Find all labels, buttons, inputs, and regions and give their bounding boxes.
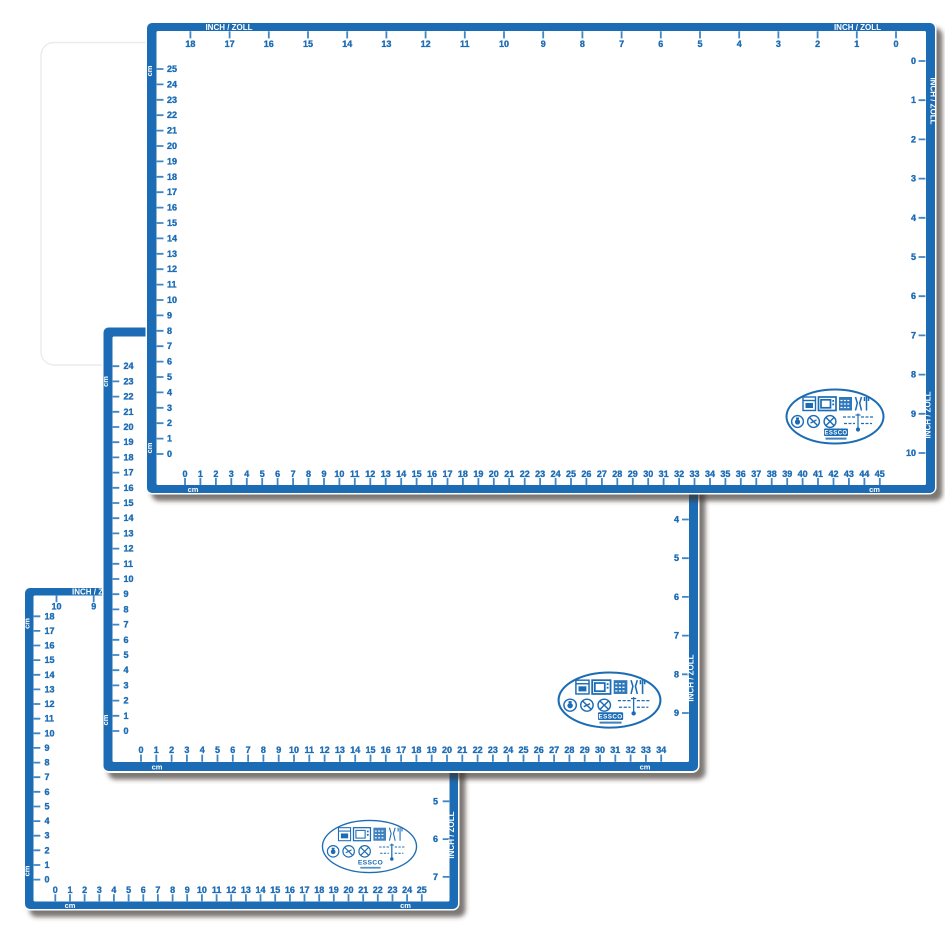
svg-text:8: 8 [306, 469, 311, 479]
svg-text:11: 11 [305, 745, 315, 755]
svg-text:16: 16 [124, 483, 134, 493]
svg-text:17: 17 [299, 885, 309, 895]
svg-text:15: 15 [45, 655, 55, 665]
svg-text:9: 9 [911, 409, 916, 419]
svg-text:25: 25 [518, 745, 528, 755]
svg-text:22: 22 [520, 469, 530, 479]
svg-text:7: 7 [167, 341, 172, 351]
svg-text:13: 13 [381, 469, 391, 479]
svg-text:21: 21 [124, 407, 134, 417]
svg-text:cm: cm [65, 901, 76, 910]
svg-text:6: 6 [433, 834, 438, 844]
svg-text:8: 8 [170, 885, 175, 895]
svg-text:17: 17 [442, 469, 452, 479]
svg-text:16: 16 [167, 203, 177, 213]
svg-text:3: 3 [124, 680, 129, 690]
svg-text:8: 8 [124, 604, 129, 614]
svg-text:8: 8 [261, 745, 266, 755]
svg-text:32: 32 [674, 469, 684, 479]
svg-text:0: 0 [167, 449, 172, 459]
svg-text:13: 13 [167, 249, 177, 259]
svg-text:INCH / ZOLL: INCH / ZOLL [205, 23, 252, 32]
svg-text:17: 17 [167, 187, 177, 197]
svg-text:22: 22 [167, 110, 177, 120]
svg-text:25: 25 [566, 469, 576, 479]
svg-text:9: 9 [321, 469, 326, 479]
svg-text:cm: cm [145, 442, 154, 453]
svg-text:2: 2 [45, 845, 50, 855]
svg-text:34: 34 [705, 469, 715, 479]
svg-text:14: 14 [342, 39, 352, 49]
svg-text:cm: cm [22, 618, 31, 629]
svg-text:2: 2 [169, 745, 174, 755]
svg-text:4: 4 [111, 885, 116, 895]
svg-text:6: 6 [275, 469, 280, 479]
svg-text:5: 5 [45, 802, 50, 812]
svg-text:5: 5 [260, 469, 265, 479]
svg-text:3: 3 [229, 469, 234, 479]
svg-text:32: 32 [626, 745, 636, 755]
svg-text:13: 13 [45, 684, 55, 694]
svg-text:2: 2 [82, 885, 87, 895]
svg-text:cm: cm [145, 65, 154, 76]
svg-text:12: 12 [167, 264, 177, 274]
svg-text:0: 0 [45, 875, 50, 885]
svg-text:13: 13 [241, 885, 251, 895]
svg-text:14: 14 [255, 885, 265, 895]
svg-text:0: 0 [124, 726, 129, 736]
svg-text:9: 9 [541, 39, 546, 49]
svg-text:11: 11 [124, 559, 134, 569]
svg-text:3: 3 [167, 403, 172, 413]
svg-text:25: 25 [417, 885, 427, 895]
svg-text:10: 10 [499, 39, 509, 49]
svg-text:15: 15 [303, 39, 313, 49]
svg-text:7: 7 [124, 620, 129, 630]
svg-text:33: 33 [641, 745, 651, 755]
svg-text:24: 24 [402, 885, 412, 895]
svg-text:24: 24 [551, 469, 561, 479]
svg-text:1: 1 [124, 711, 129, 721]
svg-text:14: 14 [124, 513, 134, 523]
svg-text:6: 6 [658, 39, 663, 49]
svg-text:20: 20 [442, 745, 452, 755]
svg-text:16: 16 [427, 469, 437, 479]
svg-text:5: 5 [167, 372, 172, 382]
svg-text:17: 17 [225, 39, 235, 49]
svg-text:39: 39 [782, 469, 792, 479]
svg-text:1: 1 [167, 434, 172, 444]
svg-text:44: 44 [859, 469, 869, 479]
svg-text:28: 28 [612, 469, 622, 479]
svg-text:0: 0 [138, 745, 143, 755]
svg-text:23: 23 [124, 376, 134, 386]
svg-text:15: 15 [412, 469, 422, 479]
svg-text:cm: cm [640, 763, 651, 772]
svg-text:15: 15 [124, 498, 134, 508]
svg-text:23: 23 [488, 745, 498, 755]
svg-text:cm: cm [400, 901, 411, 910]
svg-text:18: 18 [167, 172, 177, 182]
svg-text:12: 12 [124, 544, 134, 554]
svg-text:12: 12 [365, 469, 375, 479]
svg-text:29: 29 [628, 469, 638, 479]
svg-text:6: 6 [911, 291, 916, 301]
svg-text:8: 8 [580, 39, 585, 49]
svg-text:12: 12 [421, 39, 431, 49]
svg-text:13: 13 [381, 39, 391, 49]
svg-text:37: 37 [751, 469, 761, 479]
svg-text:6: 6 [141, 885, 146, 895]
svg-text:13: 13 [124, 528, 134, 538]
svg-text:5: 5 [124, 650, 129, 660]
svg-text:6: 6 [167, 357, 172, 367]
svg-text:19: 19 [167, 156, 177, 166]
svg-text:27: 27 [597, 469, 607, 479]
svg-text:23: 23 [535, 469, 545, 479]
svg-text:35: 35 [720, 469, 730, 479]
svg-text:18: 18 [185, 39, 195, 49]
svg-text:34: 34 [656, 745, 666, 755]
svg-text:4: 4 [200, 745, 205, 755]
svg-text:17: 17 [45, 626, 55, 636]
svg-text:INCH / ZOLL: INCH / ZOLL [447, 811, 456, 858]
svg-text:1: 1 [154, 745, 159, 755]
svg-text:9: 9 [674, 708, 679, 718]
svg-text:17: 17 [124, 468, 134, 478]
svg-text:24: 24 [503, 745, 513, 755]
svg-text:30: 30 [595, 745, 605, 755]
svg-text:16: 16 [285, 885, 295, 895]
svg-text:INCH / ZOLL: INCH / ZOLL [834, 23, 881, 32]
svg-text:10: 10 [289, 745, 299, 755]
svg-text:7: 7 [246, 745, 251, 755]
svg-text:41: 41 [813, 469, 823, 479]
svg-text:cm: cm [22, 865, 31, 876]
svg-text:11: 11 [212, 885, 222, 895]
svg-text:36: 36 [736, 469, 746, 479]
svg-text:12: 12 [320, 745, 330, 755]
svg-text:0: 0 [53, 885, 58, 895]
svg-text:18: 18 [314, 885, 324, 895]
svg-text:16: 16 [264, 39, 274, 49]
svg-text:14: 14 [167, 233, 177, 243]
svg-text:20: 20 [489, 469, 499, 479]
svg-text:15: 15 [167, 218, 177, 228]
svg-text:21: 21 [358, 885, 368, 895]
svg-text:14: 14 [396, 469, 406, 479]
svg-text:18: 18 [458, 469, 468, 479]
svg-text:7: 7 [911, 330, 916, 340]
svg-text:5: 5 [433, 796, 438, 806]
svg-text:45: 45 [875, 469, 885, 479]
svg-text:3: 3 [97, 885, 102, 895]
svg-text:cm: cm [152, 763, 163, 772]
svg-text:4: 4 [167, 387, 172, 397]
svg-text:2: 2 [815, 39, 820, 49]
svg-text:8: 8 [674, 669, 679, 679]
svg-text:4: 4 [911, 213, 916, 223]
svg-text:23: 23 [167, 95, 177, 105]
svg-text:10: 10 [167, 295, 177, 305]
svg-text:26: 26 [534, 745, 544, 755]
svg-text:INCH / ZOLL: INCH / ZOLL [924, 391, 933, 438]
svg-text:1: 1 [854, 39, 859, 49]
svg-text:40: 40 [798, 469, 808, 479]
svg-text:6: 6 [674, 592, 679, 602]
svg-text:4: 4 [674, 515, 679, 525]
svg-text:22: 22 [124, 392, 134, 402]
svg-text:38: 38 [767, 469, 777, 479]
svg-text:0: 0 [893, 39, 898, 49]
svg-text:23: 23 [387, 885, 397, 895]
svg-text:21: 21 [504, 469, 514, 479]
svg-text:18: 18 [124, 452, 134, 462]
svg-text:6: 6 [45, 787, 50, 797]
svg-text:7: 7 [291, 469, 296, 479]
svg-text:6: 6 [230, 745, 235, 755]
svg-text:25: 25 [167, 64, 177, 74]
svg-text:26: 26 [581, 469, 591, 479]
svg-text:20: 20 [124, 422, 134, 432]
svg-text:19: 19 [329, 885, 339, 895]
svg-text:18: 18 [45, 611, 55, 621]
svg-text:11: 11 [350, 469, 360, 479]
svg-text:1: 1 [911, 95, 916, 105]
svg-text:8: 8 [45, 758, 50, 768]
svg-text:28: 28 [564, 745, 574, 755]
svg-text:24: 24 [167, 79, 177, 89]
svg-text:10: 10 [51, 602, 61, 612]
svg-text:8: 8 [911, 370, 916, 380]
svg-text:2: 2 [911, 134, 916, 144]
svg-text:16: 16 [45, 641, 55, 651]
svg-text:6: 6 [124, 635, 129, 645]
svg-text:cm: cm [188, 485, 199, 494]
svg-text:31: 31 [659, 469, 669, 479]
svg-text:4: 4 [737, 39, 742, 49]
svg-text:43: 43 [844, 469, 854, 479]
svg-text:13: 13 [335, 745, 345, 755]
svg-text:19: 19 [124, 437, 134, 447]
svg-text:1: 1 [67, 885, 72, 895]
svg-text:5: 5 [697, 39, 702, 49]
svg-text:10: 10 [124, 574, 134, 584]
svg-text:16: 16 [381, 745, 391, 755]
svg-text:3: 3 [45, 831, 50, 841]
svg-text:4: 4 [45, 816, 50, 826]
svg-text:14: 14 [350, 745, 360, 755]
svg-text:5: 5 [911, 252, 916, 262]
svg-text:INCH / ZOLL: INCH / ZOLL [687, 654, 696, 701]
svg-text:cm: cm [101, 376, 110, 387]
svg-text:10: 10 [906, 448, 916, 458]
svg-text:10: 10 [45, 728, 55, 738]
svg-text:14: 14 [45, 670, 55, 680]
svg-text:30: 30 [643, 469, 653, 479]
svg-text:17: 17 [396, 745, 406, 755]
svg-text:22: 22 [473, 745, 483, 755]
svg-text:12: 12 [226, 885, 236, 895]
svg-text:cm: cm [101, 714, 110, 725]
svg-text:7: 7 [619, 39, 624, 49]
svg-text:11: 11 [460, 39, 470, 49]
svg-text:4: 4 [124, 665, 129, 675]
svg-text:8: 8 [167, 326, 172, 336]
svg-text:33: 33 [689, 469, 699, 479]
svg-text:21: 21 [457, 745, 467, 755]
svg-text:22: 22 [373, 885, 383, 895]
svg-text:1: 1 [45, 860, 50, 870]
svg-text:9: 9 [167, 310, 172, 320]
svg-text:20: 20 [343, 885, 353, 895]
svg-text:4: 4 [244, 469, 249, 479]
svg-text:5: 5 [126, 885, 131, 895]
svg-text:7: 7 [155, 885, 160, 895]
svg-text:3: 3 [911, 174, 916, 184]
svg-text:29: 29 [580, 745, 590, 755]
svg-text:27: 27 [549, 745, 559, 755]
svg-text:9: 9 [45, 743, 50, 753]
svg-text:12: 12 [45, 699, 55, 709]
svg-text:10: 10 [197, 885, 207, 895]
svg-text:0: 0 [911, 56, 916, 66]
svg-text:1: 1 [198, 469, 203, 479]
svg-text:7: 7 [674, 631, 679, 641]
svg-text:9: 9 [276, 745, 281, 755]
svg-text:20: 20 [167, 141, 177, 151]
svg-text:9: 9 [124, 589, 129, 599]
svg-text:21: 21 [167, 126, 177, 136]
svg-text:42: 42 [828, 469, 838, 479]
svg-text:9: 9 [91, 602, 96, 612]
svg-text:15: 15 [270, 885, 280, 895]
svg-text:19: 19 [427, 745, 437, 755]
svg-text:7: 7 [45, 772, 50, 782]
svg-text:9: 9 [185, 885, 190, 895]
svg-text:2: 2 [213, 469, 218, 479]
svg-text:7: 7 [433, 872, 438, 882]
svg-text:31: 31 [610, 745, 620, 755]
svg-text:INCH / ZOLL: INCH / ZOLL [929, 77, 938, 124]
svg-text:2: 2 [124, 696, 129, 706]
svg-text:18: 18 [411, 745, 421, 755]
svg-text:3: 3 [776, 39, 781, 49]
svg-text:3: 3 [184, 745, 189, 755]
svg-text:11: 11 [45, 714, 55, 724]
svg-text:0: 0 [182, 469, 187, 479]
svg-text:10: 10 [334, 469, 344, 479]
svg-text:5: 5 [215, 745, 220, 755]
svg-text:cm: cm [869, 485, 880, 494]
svg-text:5: 5 [674, 553, 679, 563]
svg-text:24: 24 [124, 361, 134, 371]
svg-text:11: 11 [167, 280, 177, 290]
svg-text:15: 15 [365, 745, 375, 755]
svg-text:19: 19 [473, 469, 483, 479]
svg-text:2: 2 [167, 418, 172, 428]
